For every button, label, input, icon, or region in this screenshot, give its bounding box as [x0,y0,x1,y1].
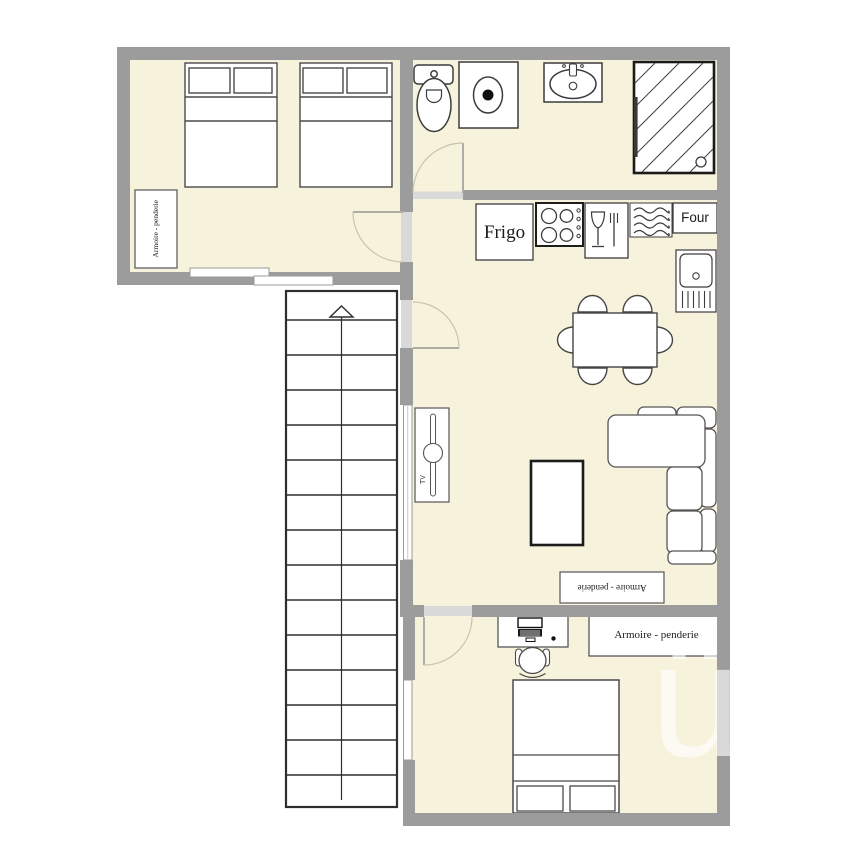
stove-icon [536,203,583,246]
wall-mid [400,262,413,300]
pillow [570,786,615,811]
pillow [189,68,230,93]
coffee-table [531,461,583,545]
floor-plan: Frigo Four Armoire - penderie Armoire - … [0,0,860,845]
washing-machine-icon [459,62,518,128]
radiator-icon [630,203,672,237]
wall-bedroom-bottom-left [403,617,415,680]
wardrobe-bottom-label: Armoire - penderie [589,615,724,656]
door-sill-bedroom-bottom [424,606,472,616]
dining-table [573,313,657,367]
window-bedroom-top [254,276,333,285]
sink-icon [544,63,602,102]
wardrobe-living-label: Armoire - penderie [560,572,664,603]
wall-bottom [403,813,730,826]
dishwasher-icon [585,203,628,258]
pillow [347,68,387,93]
double-bed-3 [513,680,619,813]
door-sill-bedroom-top [401,212,412,262]
wall-top [117,47,730,60]
floor-plan-graphics [0,0,860,845]
wall-left [117,47,130,285]
window-bedroom-bottom [404,680,413,760]
kitchen-sink-icon [676,250,716,312]
mouse-icon [551,636,555,640]
double-bed-2 [300,63,392,187]
wall-mid [400,47,413,212]
pillow [234,68,272,93]
shower-door-handle [634,97,638,157]
tv-label: TV [416,462,430,496]
wall-living-bedroom [400,605,424,617]
door-sill-bathroom [413,192,463,200]
wall-bathroom-kitchen [463,190,717,200]
pillow [517,786,563,811]
wall-bedroom-bottom-left [403,760,415,813]
stairs [286,291,397,807]
pillow [303,68,343,93]
oven-label: Four [673,203,717,233]
wall-mid [400,348,413,405]
fridge-label: Frigo [476,204,533,260]
wall-right [717,47,730,826]
double-bed-1 [185,63,277,187]
wardrobe-top-label: Armoire - penderie [135,190,177,268]
door-sill-living [401,300,412,348]
